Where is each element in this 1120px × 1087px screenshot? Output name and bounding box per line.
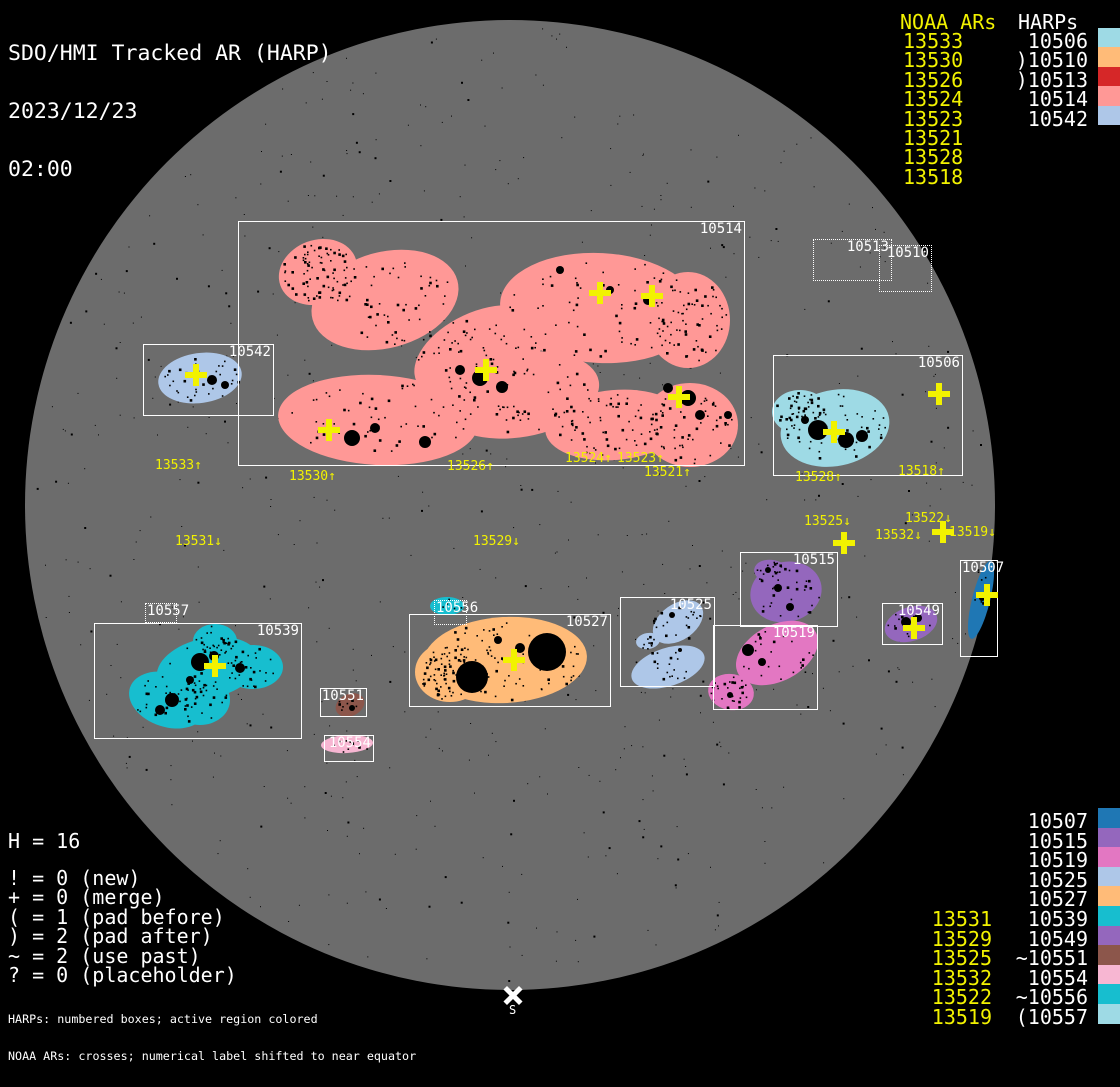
disk-speckle xyxy=(314,734,315,735)
harp-box-10551: 10551 xyxy=(320,688,367,717)
harp-box-label: 10539 xyxy=(257,625,299,638)
disk-speckle xyxy=(429,906,431,908)
time-label: 02:00 xyxy=(8,160,332,179)
disk-speckle xyxy=(127,767,128,768)
noaa-ar-label: 13529↓ xyxy=(473,536,520,548)
disk-speckle xyxy=(577,599,578,600)
harp-box-label: 10507 xyxy=(962,562,1004,575)
harp-color-swatch xyxy=(1098,28,1120,47)
noaa-ar-label: 13521↑ xyxy=(644,467,691,479)
disk-speckle xyxy=(270,598,271,599)
disk-speckle xyxy=(707,181,709,183)
disk-speckle xyxy=(804,309,805,310)
disk-speckle xyxy=(356,142,358,144)
harp-color-swatch xyxy=(1098,965,1120,985)
legend-bottom-left: H = 16 ! = 0 (new)+ = 0 (merge)( = 1 (pa… xyxy=(8,831,80,851)
disk-speckle xyxy=(126,763,127,764)
disk-speckle xyxy=(617,615,618,616)
disk-speckle xyxy=(897,667,898,668)
disk-speckle xyxy=(260,826,262,828)
harp-box-10525: 10525 xyxy=(620,597,715,687)
disk-speckle xyxy=(347,836,348,837)
disk-speckle xyxy=(416,815,417,816)
disk-speckle xyxy=(63,429,64,430)
disk-speckle xyxy=(141,317,142,318)
disk-speckle xyxy=(327,830,328,831)
disk-speckle xyxy=(507,922,509,924)
disk-speckle xyxy=(442,750,443,751)
disk-speckle xyxy=(926,483,927,484)
disk-speckle xyxy=(353,196,354,197)
disk-speckle xyxy=(214,753,215,754)
disk-speckle xyxy=(896,681,898,683)
disk-speckle xyxy=(781,162,782,163)
disk-speckle xyxy=(416,849,417,850)
disk-speckle xyxy=(287,750,288,751)
harp-box-10510: 10510 xyxy=(879,245,932,292)
harp-color-swatch xyxy=(1098,867,1120,887)
harp-box-10556: 10556 xyxy=(434,600,467,625)
disk-speckle xyxy=(438,711,439,712)
disk-speckle xyxy=(353,649,354,650)
disk-speckle xyxy=(633,115,634,116)
disk-speckle xyxy=(518,178,519,179)
disk-speckle xyxy=(509,892,510,893)
disk-speckle xyxy=(328,894,329,895)
disk-speckle xyxy=(578,767,579,768)
disk-speckle xyxy=(98,434,99,435)
disk-speckle xyxy=(322,579,324,581)
disk-speckle xyxy=(539,776,540,777)
disk-speckle xyxy=(203,234,204,235)
disk-speckle xyxy=(78,393,79,394)
disk-speckle xyxy=(129,247,130,248)
noaa-ar-label: 13532↓ xyxy=(875,530,922,542)
harp-box-label: 10514 xyxy=(700,223,742,236)
disk-speckle xyxy=(522,955,523,956)
disk-speckle xyxy=(343,215,344,216)
disk-speckle xyxy=(645,692,646,693)
disk-speckle xyxy=(467,99,469,101)
disk-speckle xyxy=(930,505,931,506)
disk-speckle xyxy=(642,534,643,535)
disk-speckle xyxy=(720,746,721,747)
disk-speckle xyxy=(762,807,763,808)
disk-speckle xyxy=(715,929,716,930)
disk-speckle xyxy=(52,406,53,407)
disk-speckle xyxy=(116,378,117,379)
disk-speckle xyxy=(404,711,405,712)
harp-box-10554: 10554 xyxy=(324,735,374,762)
disk-speckle xyxy=(676,887,677,888)
disk-speckle xyxy=(617,873,618,874)
disk-speckle xyxy=(327,500,328,501)
disk-speckle xyxy=(304,786,305,787)
disk-speckle xyxy=(451,116,452,117)
disk-speckle xyxy=(334,510,335,511)
harp-box-10557: 10557 xyxy=(145,603,177,623)
disk-speckle xyxy=(278,534,279,535)
disk-speckle xyxy=(656,944,657,945)
disk-speckle xyxy=(931,679,932,680)
disk-speckle xyxy=(376,139,377,140)
disk-speckle xyxy=(646,534,647,535)
harp-box-10515: 10515 xyxy=(740,552,838,627)
disk-speckle xyxy=(610,148,611,149)
disk-speckle xyxy=(639,820,641,822)
disk-speckle xyxy=(375,73,376,74)
footer-caption: HARPs: numbered boxes; active region col… xyxy=(8,989,416,1087)
harp-color-swatch xyxy=(1098,1004,1120,1024)
disk-speckle xyxy=(765,863,766,864)
disk-speckle xyxy=(733,594,734,595)
disk-speckle xyxy=(453,548,454,549)
disk-speckle xyxy=(393,646,394,647)
disk-speckle xyxy=(972,485,973,486)
disk-speckle xyxy=(408,125,409,126)
disk-speckle xyxy=(372,202,373,203)
noaa-ar-label: 13530↑ xyxy=(289,471,336,483)
flag-legend-lines: ! = 0 (new)+ = 0 (merge)( = 1 (pad befor… xyxy=(8,869,308,985)
disk-speckle xyxy=(605,855,606,856)
disk-speckle xyxy=(481,510,483,512)
disk-speckle xyxy=(379,193,380,194)
disk-speckle xyxy=(317,543,318,544)
disk-speckle xyxy=(547,794,548,795)
disk-speckle xyxy=(735,592,736,593)
disk-speckle xyxy=(783,787,784,788)
harp-color-swatch xyxy=(1098,106,1120,125)
noaa-ar-label: 13531↓ xyxy=(175,536,222,548)
disk-speckle xyxy=(287,798,288,799)
disk-speckle xyxy=(209,417,210,418)
disk-speckle xyxy=(68,483,69,484)
disk-speckle xyxy=(347,903,348,904)
disk-speckle xyxy=(116,347,118,349)
title-line: SDO/HMI Tracked AR (HARP) xyxy=(8,44,332,63)
disk-speckle xyxy=(488,755,489,756)
disk-speckle xyxy=(818,495,820,497)
harp-box-10506: 10506 xyxy=(773,355,963,476)
harp-box-label: 10554 xyxy=(329,737,371,750)
disk-speckle xyxy=(346,731,347,732)
disk-speckle xyxy=(591,210,592,211)
disk-speckle xyxy=(771,240,772,241)
disk-speckle xyxy=(912,682,913,683)
disk-speckle xyxy=(430,801,431,802)
disk-speckle xyxy=(619,116,620,117)
harp-count: H = 16 xyxy=(8,831,80,851)
disk-speckle xyxy=(872,207,873,208)
disk-speckle xyxy=(346,150,347,151)
disk-speckle xyxy=(749,237,750,238)
disk-speckle xyxy=(617,124,618,125)
disk-speckle xyxy=(386,908,387,909)
harp-color-swatch xyxy=(1098,984,1120,1004)
disk-speckle xyxy=(719,902,720,903)
disk-speckle xyxy=(575,940,576,941)
disk-speckle xyxy=(713,722,714,723)
disk-speckle xyxy=(181,526,182,527)
disk-speckle xyxy=(55,481,57,483)
disk-speckle xyxy=(474,793,475,794)
disk-speckle xyxy=(642,836,644,838)
disk-speckle xyxy=(706,582,707,583)
disk-speckle xyxy=(436,39,437,40)
noaa-ar-cross xyxy=(204,655,226,677)
harp-color-swatch xyxy=(1098,67,1120,86)
disk-speckle xyxy=(521,874,522,875)
disk-speckle xyxy=(643,584,644,585)
disk-speckle xyxy=(492,733,493,734)
disk-speckle xyxy=(568,540,569,541)
disk-speckle xyxy=(342,797,343,798)
disk-speckle xyxy=(37,488,39,490)
disk-speckle xyxy=(677,826,678,827)
disk-speckle xyxy=(481,60,482,61)
disk-speckle xyxy=(764,190,765,191)
disk-speckle xyxy=(940,489,941,490)
disk-speckle xyxy=(78,562,79,563)
disk-speckle xyxy=(700,712,701,713)
disk-speckle xyxy=(382,518,383,519)
disk-speckle xyxy=(556,39,557,40)
disk-speckle xyxy=(134,417,135,418)
south-pole-marker-icon xyxy=(503,985,523,1005)
disk-speckle xyxy=(420,145,421,146)
harp-color-swatch xyxy=(1098,86,1120,105)
disk-speckle xyxy=(220,756,221,757)
disk-speckle xyxy=(110,575,112,577)
south-pole-label: S xyxy=(509,1004,516,1016)
disk-speckle xyxy=(929,541,930,542)
disk-speckle xyxy=(69,596,70,597)
disk-speckle xyxy=(187,427,188,428)
disk-speckle xyxy=(375,157,377,159)
disk-speckle xyxy=(90,568,91,569)
disk-speckle xyxy=(599,781,600,782)
disk-speckle xyxy=(593,936,595,938)
disk-speckle xyxy=(719,742,720,743)
disk-speckle xyxy=(329,725,330,726)
disk-speckle xyxy=(653,790,654,791)
disk-speckle xyxy=(347,822,349,824)
disk-speckle xyxy=(892,341,893,342)
disk-speckle xyxy=(208,285,210,287)
disk-speckle xyxy=(445,876,447,878)
legend-top-right: NOAA ARs HARPs 135331050613530)105101352… xyxy=(880,0,1120,200)
disk-speckle xyxy=(352,113,354,115)
disk-speckle xyxy=(756,789,757,790)
disk-speckle xyxy=(853,666,854,667)
page-title: SDO/HMI Tracked AR (HARP) 2023/12/23 02:… xyxy=(8,6,332,217)
disk-speckle xyxy=(389,681,391,683)
disk-speckle xyxy=(421,510,423,512)
disk-speckle xyxy=(228,442,229,443)
disk-speckle xyxy=(542,28,543,29)
disk-speckle xyxy=(483,857,484,858)
disk-speckle xyxy=(662,564,663,565)
disk-speckle xyxy=(424,190,425,191)
disk-speckle xyxy=(465,165,466,166)
harp-color-swatch xyxy=(1098,886,1120,906)
disk-speckle xyxy=(365,891,366,892)
disk-speckle xyxy=(908,490,910,492)
disk-speckle xyxy=(510,833,512,835)
disk-speckle xyxy=(947,351,949,353)
harp-color-swatch xyxy=(1098,828,1120,848)
disk-speckle xyxy=(291,803,292,804)
disk-speckle xyxy=(699,565,701,567)
disk-speckle xyxy=(654,209,655,210)
disk-speckle xyxy=(660,195,661,196)
disk-speckle xyxy=(690,568,691,569)
disk-speckle xyxy=(513,800,515,802)
disk-speckle xyxy=(126,270,128,272)
disk-speckle xyxy=(672,688,673,689)
harp-box-label: 10515 xyxy=(793,554,835,567)
disk-speckle xyxy=(523,157,524,158)
disk-speckle xyxy=(902,747,904,749)
disk-speckle xyxy=(577,899,578,900)
solar-harp-map: 1051410542105061051310510105151054910507… xyxy=(0,0,1120,1024)
disk-speckle xyxy=(308,607,309,608)
disk-speckle xyxy=(225,292,227,294)
disk-speckle xyxy=(814,186,815,187)
disk-speckle xyxy=(535,75,536,76)
disk-speckle xyxy=(363,828,364,829)
disk-speckle xyxy=(171,765,172,766)
disk-speckle xyxy=(270,506,271,507)
disk-speckle xyxy=(271,499,272,500)
disk-speckle xyxy=(842,231,843,232)
disk-speckle xyxy=(224,421,226,423)
disk-speckle xyxy=(849,204,850,205)
harp-box-label: 10527 xyxy=(566,616,608,629)
disk-speckle xyxy=(431,42,433,44)
disk-speckle xyxy=(833,640,835,642)
disk-speckle xyxy=(499,160,500,161)
disk-speckle xyxy=(543,85,544,86)
disk-speckle xyxy=(84,527,86,529)
disk-speckle xyxy=(686,773,688,775)
disk-speckle xyxy=(69,612,70,613)
disk-speckle xyxy=(659,720,660,721)
disk-speckle xyxy=(531,489,533,491)
harp-box-label: 10556 xyxy=(436,602,478,615)
disk-speckle xyxy=(71,434,73,436)
disk-speckle xyxy=(843,798,844,799)
noaa-ar-cross xyxy=(976,584,998,606)
disk-speckle xyxy=(566,47,567,48)
disk-speckle xyxy=(357,776,358,777)
disk-speckle xyxy=(411,555,412,556)
disk-speckle xyxy=(574,117,575,118)
disk-speckle xyxy=(571,502,572,503)
disk-speckle xyxy=(502,866,503,867)
disk-speckle xyxy=(422,492,423,493)
disk-speckle xyxy=(222,270,223,271)
legend-harp-number: 10542 xyxy=(1000,107,1088,131)
disk-speckle xyxy=(716,157,717,158)
disk-speckle xyxy=(630,172,631,173)
disk-speckle xyxy=(442,122,443,123)
disk-speckle xyxy=(841,597,842,598)
disk-speckle xyxy=(668,521,669,522)
disk-speckle xyxy=(223,550,224,551)
noaa-ar-label: 13519↓ xyxy=(949,527,996,539)
noaa-ar-cross xyxy=(318,419,340,441)
disk-speckle xyxy=(404,652,405,653)
disk-speckle xyxy=(120,342,121,343)
disk-speckle xyxy=(664,593,665,594)
disk-speckle xyxy=(980,444,982,446)
disk-speckle xyxy=(667,183,668,184)
disk-speckle xyxy=(157,435,158,436)
disk-speckle xyxy=(346,58,347,59)
disk-speckle xyxy=(294,544,295,545)
disk-speckle xyxy=(766,499,767,500)
disk-speckle xyxy=(230,323,231,324)
disk-speckle xyxy=(527,783,528,784)
disk-speckle xyxy=(46,617,47,618)
disk-speckle xyxy=(545,728,546,729)
disk-speckle xyxy=(359,151,361,153)
disk-speckle xyxy=(796,144,797,145)
disk-speckle xyxy=(642,155,643,156)
disk-speckle xyxy=(129,756,131,758)
disk-speckle xyxy=(367,956,368,957)
noaa-ar-label: 13526↑ xyxy=(447,461,494,473)
disk-speckle xyxy=(326,763,327,764)
disk-speckle xyxy=(420,105,421,106)
disk-speckle xyxy=(888,670,890,672)
disk-speckle xyxy=(691,149,692,150)
disk-speckle xyxy=(510,947,511,948)
noaa-ar-cross xyxy=(503,649,525,671)
disk-speckle xyxy=(717,914,719,916)
disk-speckle xyxy=(871,479,872,480)
disk-speckle xyxy=(884,232,885,233)
disk-speckle xyxy=(146,769,148,771)
disk-speckle xyxy=(848,596,850,598)
harp-box-label: 10542 xyxy=(229,346,271,359)
harp-color-swatch xyxy=(1098,945,1120,965)
disk-speckle xyxy=(758,257,759,258)
disk-speckle xyxy=(95,425,96,426)
disk-speckle xyxy=(461,82,463,84)
disk-speckle xyxy=(428,506,429,507)
disk-speckle xyxy=(710,867,711,868)
disk-speckle xyxy=(180,479,181,480)
disk-speckle xyxy=(811,137,812,138)
disk-speckle xyxy=(718,925,719,926)
disk-speckle xyxy=(815,499,816,500)
disk-speckle xyxy=(686,486,687,487)
disk-speckle xyxy=(197,482,199,484)
region-speckle xyxy=(711,693,713,695)
disk-speckle xyxy=(561,137,562,138)
disk-speckle xyxy=(644,829,645,830)
disk-speckle xyxy=(586,578,587,579)
disk-speckle xyxy=(263,586,265,588)
harp-box-label: 10557 xyxy=(147,605,189,618)
noaa-ar-cross xyxy=(641,285,663,307)
disk-speckle xyxy=(101,279,102,280)
disk-speckle xyxy=(350,90,351,91)
disk-speckle xyxy=(556,961,557,962)
disk-speckle xyxy=(558,491,559,492)
